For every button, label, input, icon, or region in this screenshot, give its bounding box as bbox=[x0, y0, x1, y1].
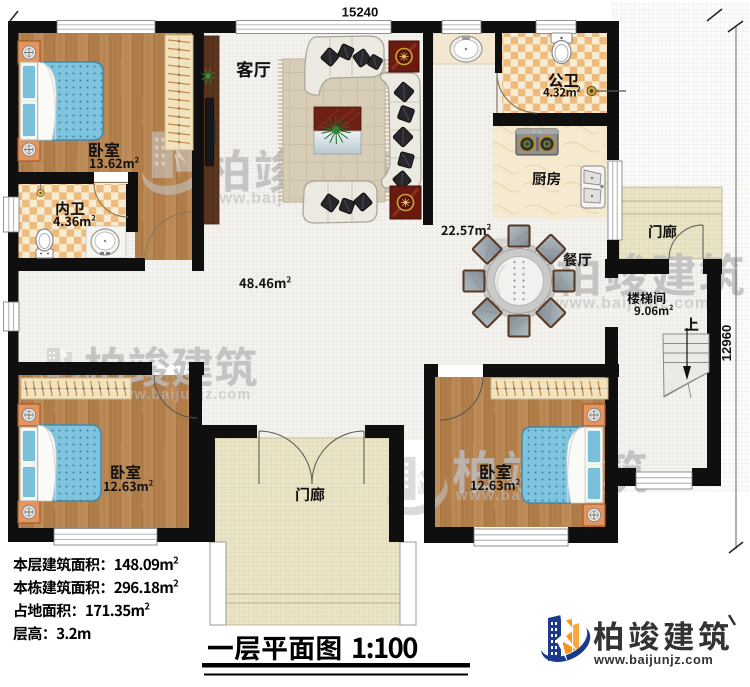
svg-text:15240: 15240 bbox=[342, 5, 379, 20]
svg-text:www.baijunjz.com: www.baijunjz.com bbox=[593, 652, 713, 667]
svg-text:12960: 12960 bbox=[719, 325, 734, 362]
